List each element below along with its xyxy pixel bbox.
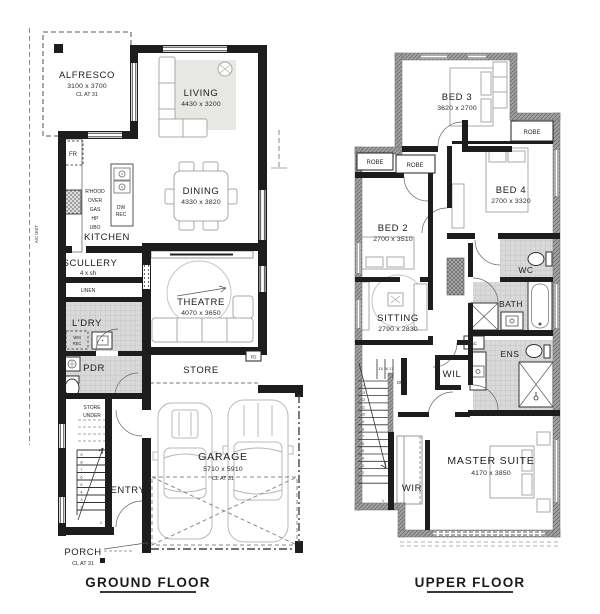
stair-num: 11: [361, 404, 365, 409]
master-suite-dims: 4170 x 3850: [471, 470, 511, 477]
stair-num: 2: [80, 505, 82, 510]
porch-note: CL AT 31: [72, 561, 94, 567]
upper-floor-plan: BED 3 3620 x 2700 ROBE ROBE ROBE BED 4 2…: [355, 53, 560, 546]
robe-label-1: ROBE: [366, 160, 383, 166]
alfresco-dims: 3100 x 3700: [67, 83, 107, 90]
scullery-label: SCULLERY: [63, 258, 118, 269]
stair-num: 6: [80, 475, 82, 480]
bed3-label: BED 3: [442, 92, 472, 103]
ens-label: ENS: [501, 349, 520, 359]
garage-label: GARAGE: [198, 451, 248, 463]
theatre-dims: 4070 x 3650: [181, 310, 221, 317]
kitchen-label: KITCHEN: [84, 232, 130, 243]
living-label: LIVING: [184, 88, 219, 99]
pd-label: PD: [251, 355, 257, 360]
stair-num-first: 1: [100, 520, 102, 525]
store-under-label-1: STORE: [83, 405, 101, 411]
stair-num: 3: [362, 463, 364, 468]
rangehood-label-2: OVER: [88, 198, 103, 204]
fridge-label: FR: [69, 152, 78, 158]
garage-note: CL AT 31: [212, 476, 234, 482]
stair-num: 2: [362, 470, 364, 475]
stair-num: 4: [80, 490, 83, 495]
bath-label: BATH: [499, 299, 523, 309]
sitting-label: SITTING: [377, 313, 419, 324]
void-duct-box: [447, 258, 464, 295]
scullery-note: 4 x sh: [80, 271, 96, 277]
alfresco-label: ALFRESCO: [59, 70, 115, 81]
porch-label: PORCH: [64, 547, 101, 558]
master-suite-label: MASTER SUITE: [447, 455, 534, 467]
wc-toilet: [528, 253, 544, 266]
theatre-label: THEATRE: [177, 297, 225, 308]
bed4-label: BED 4: [496, 185, 526, 196]
stair-num: 12: [361, 397, 365, 402]
ac-label: AC: [471, 341, 477, 346]
bed2-dims: 2700 x 3510: [373, 236, 413, 243]
rangehood-label-5: UBO: [90, 225, 101, 231]
cooktop-symbol: [64, 190, 81, 214]
stair-num: 3: [80, 497, 82, 502]
entry-label: ENTRY: [110, 485, 145, 496]
stair-num: 7: [362, 434, 364, 439]
stair-num: 5: [80, 482, 82, 487]
wir-label: WIR: [402, 483, 422, 494]
robe-label-2: ROBE: [406, 163, 423, 169]
stair-num: 8: [362, 426, 364, 431]
wil-label: WIL: [443, 369, 462, 380]
stair-top-numbers: 15 16 17: [378, 366, 393, 371]
stair-num: 7: [80, 467, 82, 472]
stair-num-first: 1: [382, 498, 384, 503]
alfresco-note: CL AT 31: [76, 92, 98, 98]
bed4-dims: 2700 x 3320: [491, 198, 531, 205]
stair-num: 10: [361, 412, 366, 417]
rangehood-label-3: GAS: [90, 207, 101, 213]
ac-unit-label: A/C UNIT: [34, 225, 39, 243]
dishwasher-label-2: REC: [116, 212, 127, 218]
robe-label-3: ROBE: [523, 130, 540, 136]
upper-eave-dashes: [400, 542, 558, 546]
dining-dims: 4330 x 3820: [181, 199, 221, 206]
stair-num: 4: [362, 456, 365, 461]
garage-dims: 5710 x 5910: [203, 466, 243, 473]
plan-titles: GROUND FLOOR UPPER FLOOR: [85, 575, 525, 592]
living-dims: 4430 x 3200: [181, 101, 221, 108]
pdr-label: PDR: [83, 363, 105, 374]
rangehood-label-4: HP: [92, 216, 100, 222]
dining-label: DINING: [183, 186, 220, 197]
ground-floor-plan: ALFRESCO 3100 x 3700 CL AT 31 LIVING 443…: [30, 28, 304, 567]
bed2-label: BED 2: [378, 223, 408, 234]
floor-plan-page: ALFRESCO 3100 x 3700 CL AT 31 LIVING 443…: [0, 0, 600, 614]
wc-label: WC: [518, 265, 533, 275]
stair-num: 6: [362, 441, 364, 446]
porch-leader: [104, 542, 149, 552]
floor-plan-drawing: ALFRESCO 3100 x 3700 CL AT 31 LIVING 443…: [0, 0, 600, 614]
stair-num: 9: [362, 419, 364, 424]
stair-num: 5: [362, 448, 364, 453]
stair-num: 13: [361, 390, 365, 395]
bed3-dims: 3620 x 2700: [437, 105, 477, 112]
store-under-label-2: UNDER: [83, 413, 101, 419]
upper-floor-title: UPPER FLOOR: [415, 575, 526, 590]
store-label: STORE: [183, 365, 219, 376]
stair-num: 8: [80, 460, 82, 465]
dishwasher-label-1: DW: [117, 205, 126, 211]
down-label: DN: [397, 380, 403, 385]
ground-floor-title: GROUND FLOOR: [85, 575, 210, 590]
laundry-label: L'DRY: [72, 318, 102, 329]
ens-toilet: [526, 345, 542, 358]
wm-label-1: WM: [73, 335, 81, 340]
linen-label: LINEN: [81, 288, 96, 294]
rangehood-label-1: R'HOOD: [85, 189, 105, 195]
wm-label-2: REC: [73, 341, 82, 346]
stair-num: 9: [80, 452, 82, 457]
sitting-dims: 2790 x 2830: [378, 326, 418, 333]
